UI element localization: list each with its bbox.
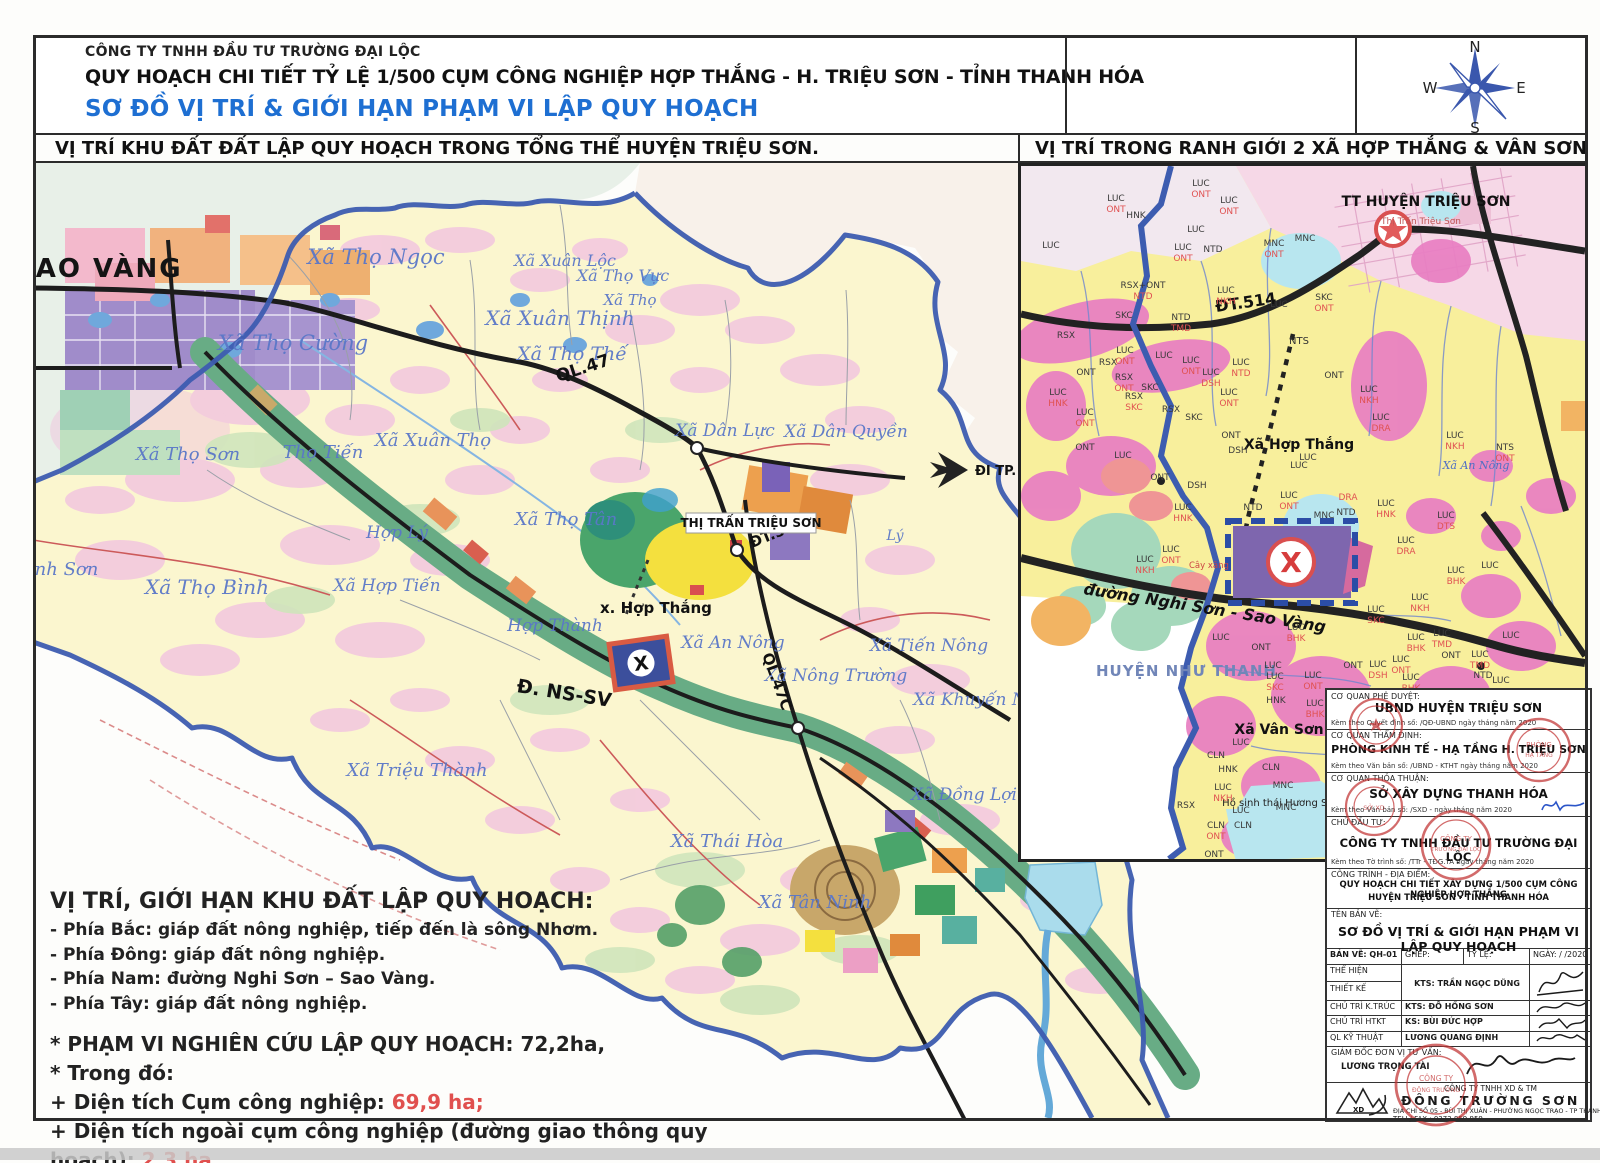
- landuse-code: NTD: [1133, 292, 1152, 302]
- notes-line-east: - Phía Đông: giáp đất nông nghiệp.: [50, 943, 790, 968]
- commune-label: Xã Tiến Nông: [868, 636, 988, 656]
- landuse-code: ONT: [1173, 254, 1193, 264]
- landuse-code: LUC: [1202, 368, 1219, 378]
- commune-label: Xã Đồng Lợi: [909, 785, 1017, 805]
- landuse-code: DTS: [1437, 522, 1455, 532]
- site-marker-main: X: [609, 636, 673, 690]
- commune-label: Lý: [886, 527, 905, 544]
- section-divider: [1018, 133, 1020, 161]
- landuse-code: ONT: [1106, 205, 1126, 215]
- notes-line-west: - Phía Tây: giáp đất nông nghiệp.: [50, 992, 790, 1017]
- location-notes: VỊ TRÍ, GIỚI HẠN KHU ĐẤT LẬP QUY HOẠCH: …: [50, 886, 790, 1163]
- commune-label: Thọ Tiến: [283, 442, 364, 463]
- role-the-hien: THỂ HIỆN: [1327, 964, 1402, 982]
- landuse-code: LUC: [1192, 179, 1209, 189]
- landuse-code: DRA: [1339, 493, 1359, 503]
- landuse-code: ONT: [1219, 207, 1239, 217]
- landuse-code: NKH: [1216, 297, 1235, 307]
- landuse-code: LUC: [1076, 408, 1093, 418]
- se-lake: [1025, 862, 1102, 935]
- landuse-code: LUC: [1264, 661, 1281, 671]
- landuse-code: SKC: [1141, 383, 1158, 393]
- merge: GHÉP:: [1402, 948, 1464, 964]
- compass-n: N: [1469, 40, 1480, 56]
- landuse-code: NKH: [1135, 566, 1154, 576]
- landuse-code: LUC: [1407, 633, 1424, 643]
- landuse-code: HNK: [1266, 696, 1287, 706]
- landuse-code: NTD: [1336, 508, 1355, 518]
- landuse-code: LUC: [1220, 196, 1237, 206]
- landuse-code: ONT: [1161, 556, 1181, 566]
- notes-area1: + Diện tích Cụm công nghiệp: 69,9 ha;: [50, 1088, 790, 1117]
- landuse-code: TMD: [1431, 640, 1452, 650]
- frame-header-sep: [33, 133, 1588, 135]
- landuse-code: TMD: [1469, 661, 1490, 671]
- frame-left: [33, 35, 36, 1121]
- svg-text:THỊ TRẤN TRIỆU SƠN: THỊ TRẤN TRIỆU SƠN: [681, 513, 822, 530]
- landuse-code: LUC: [1397, 536, 1414, 546]
- landuse-code: BHK: [1447, 577, 1467, 587]
- landuse-code: ONT: [1075, 443, 1095, 453]
- signature: [1533, 1000, 1587, 1015]
- firm-name: ĐÔNG TRƯỜNG SƠN: [1393, 1093, 1588, 1108]
- landuse-code: NKH: [1213, 794, 1232, 804]
- landuse-code: BHK: [1407, 644, 1427, 654]
- site-label: x. Hợp Thắng: [600, 598, 712, 617]
- landuse-code: ONT: [1150, 473, 1170, 483]
- compass-star: [1435, 48, 1515, 128]
- inset-gas: Cây xăng: [1189, 561, 1229, 571]
- header-title: QUY HOẠCH CHI TIẾT TỶ LỆ 1/500 CỤM CÔNG …: [85, 66, 1165, 88]
- commune-label: Xã Xuân Thọ: [373, 430, 491, 451]
- signature: [1533, 1031, 1587, 1046]
- commune-label: Xã Dân Lực: [673, 421, 775, 441]
- tt-sub: Thị Trấn Triệu Sơn: [1380, 216, 1461, 227]
- landuse-code: DSH: [1368, 671, 1387, 681]
- landuse-code: ONT: [1324, 371, 1344, 381]
- firm-logo: XD: [1333, 1085, 1391, 1117]
- landuse-code: ONT: [1314, 304, 1334, 314]
- landuse-code: LUC: [1182, 356, 1199, 366]
- landuse-code: LUC: [1287, 623, 1304, 633]
- landuse-code: NTD: [1243, 503, 1262, 513]
- landuse-code: HNK: [1126, 211, 1147, 221]
- town-label-box: THỊ TRẤN TRIỆU SƠN: [681, 513, 822, 533]
- drawing-row: TÊN BẢN VẼ: SƠ ĐỒ VỊ TRÍ & GIỚI HẠN PHẠM…: [1327, 908, 1590, 949]
- landuse-code: MNC: [1276, 803, 1297, 813]
- blue-signature: [1540, 796, 1586, 814]
- header-divider-1: [1065, 35, 1067, 133]
- landuse-code: SKC: [1266, 683, 1283, 693]
- landuse-code: LUC: [1471, 650, 1488, 660]
- signature: [1533, 1016, 1587, 1031]
- landuse-code: SKC: [1185, 413, 1202, 423]
- landuse-code: NTD: [1203, 245, 1222, 255]
- landuse-code: ONT: [1219, 399, 1239, 409]
- signature: [1533, 966, 1587, 998]
- staff-row: CHỦ TRÌ HTKT KS: BÙI ĐỨC HỢP: [1327, 1015, 1590, 1032]
- commune-label: Hợp Thành: [506, 616, 603, 636]
- commune-label: Hợp Lý: [365, 523, 428, 543]
- inset-van-son: Xã Vân Sơn: [1234, 722, 1323, 738]
- approval-row: CƠ QUAN PHÊ DUYỆT: UBND HUYỆN TRIỆU SƠN …: [1327, 690, 1590, 730]
- landuse-code: LUC: [1114, 451, 1131, 461]
- project-row: CÔNG TRÌNH - ĐỊA ĐIỂM: QUY HOẠCH CHI TIẾ…: [1327, 868, 1590, 909]
- landuse-code: LUC: [1214, 783, 1231, 793]
- landuse-code: LUC: [1212, 633, 1229, 643]
- title-block: CƠ QUAN PHÊ DUYỆT: UBND HUYỆN TRIỆU SƠN …: [1325, 688, 1592, 1122]
- commune-label: Xã Dân Quyền: [782, 422, 908, 442]
- scale: TỶ LỆ:: [1464, 948, 1530, 964]
- landuse-code: ONT: [1181, 367, 1201, 377]
- landuse-code: NTS: [1496, 443, 1514, 453]
- landuse-code: LUC: [1174, 243, 1191, 253]
- landuse-code: LUC: [1446, 431, 1463, 441]
- commune-label: Xã Thọ Tân: [513, 509, 617, 530]
- landuse-code: LUC: [1107, 194, 1124, 204]
- landuse-code: LUC: [1304, 671, 1321, 681]
- scan-artifact-strip: [0, 1148, 1600, 1160]
- commune-label: Bình Sơn: [33, 559, 98, 580]
- landuse-code: LUC: [1360, 385, 1377, 395]
- sao-vang-label: SAO VÀNG: [33, 252, 183, 284]
- landuse-code: LUC: [1437, 511, 1454, 521]
- landuse-code: RSX+ONT: [1121, 281, 1166, 291]
- notes-line-south: - Phía Nam: đường Nghi Sơn – Sao Vàng.: [50, 967, 790, 992]
- landuse-code: NTD: [1473, 671, 1492, 681]
- landuse-code: ONT: [1343, 661, 1363, 671]
- sheet-no: BẢN VẼ: QH-01: [1327, 948, 1402, 964]
- landuse-code: ONT: [1279, 502, 1299, 512]
- landuse-code: DRA: [1372, 424, 1392, 434]
- compass-w: W: [1423, 79, 1438, 97]
- landuse-code: LUC: [1280, 491, 1297, 501]
- landuse-code: CLN: [1207, 821, 1225, 831]
- commune-label: Xã Thọ Bình: [143, 575, 269, 599]
- landuse-code: ONT: [1191, 190, 1211, 200]
- landuse-code: HNK: [1218, 765, 1239, 775]
- landuse-code: LUC: [1377, 499, 1394, 509]
- frame-section-sep: [33, 161, 1588, 163]
- section-title-left: VỊ TRÍ KHU ĐẤT ĐẤT LẬP QUY HOẠCH TRONG T…: [55, 138, 819, 159]
- landuse-code: SKC: [1367, 616, 1384, 626]
- landuse-code: LUC: [1049, 388, 1066, 398]
- landuse-code: LUC: [1116, 346, 1133, 356]
- commune-label: Xã Thọ Vực: [575, 266, 670, 285]
- landuse-code: DRA: [1397, 547, 1417, 557]
- landuse-code: SKC: [1315, 293, 1332, 303]
- landuse-code: LUC: [1299, 453, 1316, 463]
- landuse-code: ONT: [1303, 682, 1323, 692]
- landuse-code: BHK: [1287, 634, 1307, 644]
- area1-value: 69,9 ha;: [392, 1090, 484, 1114]
- tt-label: TT HUYỆN TRIỆU SƠN: [1341, 192, 1510, 210]
- landuse-code: ONT: [1206, 832, 1226, 842]
- landuse-code: NKH: [1445, 442, 1464, 452]
- commune-label: Xã Hợp Tiến: [331, 576, 440, 596]
- frame-right: [1585, 35, 1588, 1121]
- director-row: GIÁM ĐỐC ĐƠN VỊ TƯ VẤN: LƯƠNG TRỌNG TÀI: [1327, 1046, 1590, 1083]
- landuse-code: HNK: [1048, 399, 1069, 409]
- staff-row: CHỦ TRÌ K.TRÚC KTS: ĐỖ HỒNG SƠN: [1327, 1000, 1590, 1016]
- landuse-code: LUC: [1232, 806, 1249, 816]
- landuse-code: LUC: [1369, 660, 1386, 670]
- landuse-code: ONT: [1115, 357, 1135, 367]
- landuse-code: LUC: [1306, 699, 1323, 709]
- inset-hop-thang: Xã Hợp Thắng: [1244, 436, 1354, 453]
- landuse-code: LUC: [1136, 555, 1153, 565]
- approval-row: CƠ QUAN THỎA THUẬN: SỞ XÂY DỰNG THANH HÓ…: [1327, 772, 1590, 817]
- director-signature: [1457, 1048, 1577, 1080]
- landuse-code: RSX: [1057, 331, 1075, 341]
- landuse-code: LUC: [1372, 413, 1389, 423]
- landuse-code: DSH: [1201, 379, 1220, 389]
- approval-row: CHỦ ĐẦU TƯ: CÔNG TY TNHH ĐẦU TƯ TRƯỜNG Đ…: [1327, 816, 1590, 869]
- landuse-code: ONT: [1204, 850, 1224, 859]
- landuse-code: NKH: [1410, 604, 1429, 614]
- landuse-code: LUC: [1447, 566, 1464, 576]
- landuse-code: RSX: [1125, 392, 1143, 402]
- landuse-code: LUC: [1411, 593, 1428, 603]
- commune-label: Xã Thọ Ngọc: [305, 245, 444, 269]
- landuse-code: BHK: [1306, 710, 1326, 720]
- date: NGÀY: / /2020: [1530, 948, 1590, 964]
- inset-nts: NTS: [1289, 336, 1309, 347]
- firm-row: XD CÔNG TY TNHH XD & TM ĐÔNG TRƯỜNG SƠN …: [1327, 1082, 1590, 1120]
- landuse-code: LUC: [1266, 672, 1283, 682]
- landuse-code: LUC: [1433, 629, 1450, 639]
- landuse-code: ONT: [1075, 419, 1095, 429]
- landuse-code: LUC: [1155, 351, 1172, 361]
- header-company: CÔNG TY TNHH ĐẦU TƯ TRƯỜNG ĐẠI LỘC: [85, 44, 421, 60]
- landuse-code: RSX: [1162, 405, 1180, 415]
- landuse-code: ONT: [1495, 454, 1515, 464]
- commune-label: Xã An Nông: [679, 633, 784, 653]
- landuse-code: CLN: [1207, 751, 1225, 761]
- landuse-code: NTD: [1171, 313, 1190, 323]
- commune-label: Xã Xuân Thịnh: [483, 306, 634, 330]
- landuse-code: CLN: [1262, 763, 1280, 773]
- landuse-code: ONT: [1264, 250, 1284, 260]
- staff-row: QL KỸ THUẬT LƯƠNG QUANG ĐỊNH: [1327, 1031, 1590, 1047]
- landuse-code: CLN: [1234, 821, 1252, 831]
- landuse-code: LUC: [1042, 241, 1059, 251]
- landuse-code: RSX: [1115, 373, 1133, 383]
- landuse-code: LUC: [1402, 673, 1419, 683]
- landuse-code: LUC: [1217, 286, 1234, 296]
- firm-type: CÔNG TY TNHH XD & TM: [1393, 1084, 1588, 1093]
- notes-scope: * PHẠM VI NGHIÊN CỨU LẬP QUY HOẠCH: 72,2…: [50, 1030, 790, 1059]
- commune-label: Xã Thọ Sơn: [134, 444, 240, 465]
- role-thiet-ke: THIẾT KẾ: [1327, 982, 1402, 1000]
- approval-row: CƠ QUAN THẨM ĐỊNH: PHÒNG KINH TẾ - HẠ TẦ…: [1327, 729, 1590, 773]
- landuse-code: LUC: [1162, 545, 1179, 555]
- landuse-code: LUC: [1481, 561, 1498, 571]
- landuse-code: NTD: [1231, 369, 1250, 379]
- section-title-right: VỊ TRÍ TRONG RANH GIỚI 2 XÃ HỢP THẮNG & …: [1035, 138, 1587, 159]
- landuse-code: LUC: [1187, 225, 1204, 235]
- landuse-code: LUC: [1492, 676, 1509, 686]
- landuse-code: LUC: [1392, 655, 1409, 665]
- landuse-code: MNC: [1314, 511, 1335, 521]
- landuse-code: RSX: [1177, 801, 1195, 811]
- staff-rows-1: THỂ HIỆN THIẾT KẾ KTS: TRẦN NGỌC DŨNG: [1327, 964, 1590, 1001]
- landuse-code: DSH: [1228, 446, 1247, 456]
- landuse-code: NKH: [1359, 396, 1378, 406]
- notes-in-which: * Trong đó:: [50, 1059, 790, 1088]
- commune-label: Xã Thọ Cường: [216, 331, 368, 355]
- landuse-code: DSH: [1187, 481, 1206, 491]
- se-river: [1040, 930, 1049, 1118]
- commune-label: Xã Triệu Thành: [344, 760, 487, 781]
- landuse-code: ONT: [1251, 643, 1271, 653]
- landuse-code: SKC: [1125, 403, 1142, 413]
- plan-sheet: ĐI TP. TH X SAO VÀNG Xã Thọ NgọcXã Xuân …: [0, 0, 1600, 1163]
- inset-nhu-thanh: HUYỆN NHƯ THANH: [1096, 660, 1277, 680]
- landuse-code: LUC: [1220, 388, 1237, 398]
- landuse-code: LUC: [1367, 605, 1384, 615]
- landuse-code: LUC: [1232, 358, 1249, 368]
- commune-label: Xã Thái Hòa: [669, 831, 783, 852]
- compass-rose: N S E W: [1420, 40, 1530, 135]
- svg-text:X: X: [1280, 546, 1302, 579]
- landuse-code: HNK: [1173, 514, 1194, 524]
- landuse-code: LUC: [1174, 503, 1191, 513]
- landuse-code: MNC: [1264, 239, 1285, 249]
- svg-text:XD: XD: [1353, 1106, 1364, 1114]
- director-name: LƯƠNG TRỌNG TÀI: [1341, 1062, 1430, 1072]
- landuse-code: HNK: [1376, 510, 1397, 520]
- landuse-code: MNC: [1273, 781, 1294, 791]
- landuse-code: ONT: [1076, 368, 1096, 378]
- notes-title: VỊ TRÍ, GIỚI HẠN KHU ĐẤT LẬP QUY HOẠCH:: [50, 886, 790, 918]
- compass-e: E: [1516, 79, 1525, 97]
- frame-bottom: [33, 1118, 1588, 1121]
- meta-row: BẢN VẼ: QH-01 GHÉP: TỶ LỆ: NGÀY: / /2020: [1327, 948, 1590, 965]
- landuse-code: LUC: [1232, 738, 1249, 748]
- landuse-code: SKC: [1115, 311, 1132, 321]
- landuse-code: ONT: [1441, 651, 1461, 661]
- firm-address: ĐỊA CHỈ SỐ 05 - BÙI THỊ XUÂN - PHƯỜNG NG…: [1393, 1108, 1588, 1115]
- landuse-code: LUC: [1270, 300, 1287, 310]
- header-subtitle: SƠ ĐỒ VỊ TRÍ & GIỚI HẠN PHẠM VI LẬP QUY …: [85, 96, 758, 122]
- landuse-code: MNC: [1295, 234, 1316, 244]
- notes-line-north: - Phía Bắc: giáp đất nông nghiệp, tiếp đ…: [50, 918, 790, 943]
- landuse-code: TMD: [1170, 324, 1191, 334]
- landuse-code: LUC: [1502, 631, 1519, 641]
- person-tran-ngoc-dung: KTS: TRẦN NGỌC DŨNG: [1402, 964, 1530, 1000]
- header-divider-2: [1355, 35, 1357, 133]
- landuse-code: ONT: [1221, 431, 1241, 441]
